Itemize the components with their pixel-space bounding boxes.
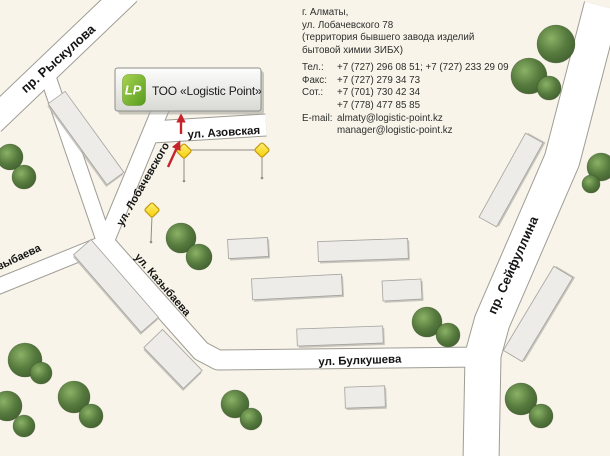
fence-post-dot	[183, 180, 186, 183]
contact-row-value: manager@logistic-point.kz	[337, 125, 453, 138]
contact-row-value: +7 (727) 296 08 51; +7 (727) 233 29 09	[337, 62, 509, 75]
fence-post-dot	[150, 241, 153, 244]
contact-row: Тел.: +7 (727) 296 08 51; +7 (727) 233 2…	[302, 62, 608, 75]
tree-cluster	[58, 381, 103, 428]
contact-row-value: +7 (727) 279 34 73	[337, 75, 420, 88]
contact-territory: бытовой химии ЗИБХ)	[302, 45, 608, 58]
map-canvas: пр. Рыскулова ул. Лобачевского ул. Азовс…	[0, 0, 610, 456]
contact-territory: (территория бывшего завода изделий	[302, 32, 608, 45]
building	[297, 326, 385, 348]
fence-post-dot	[261, 177, 264, 180]
tree-cluster	[0, 144, 36, 189]
contact-block: г. Алматы, ул. Лобачевского 78 (территор…	[302, 7, 608, 138]
gate-marker-diamond	[144, 202, 160, 218]
contact-row-label	[302, 100, 337, 113]
logo-title: ТОО «Logistic Point»	[152, 84, 262, 98]
tree-cluster	[582, 153, 610, 193]
logo-icon: LP	[123, 75, 146, 106]
contact-row-label: Тел.:	[302, 62, 337, 75]
contact-row-label: Факс:	[302, 75, 337, 88]
tree-cluster	[505, 383, 553, 428]
contact-row: Факс: +7 (727) 279 34 73	[302, 75, 608, 88]
contact-row: E-mail: almaty@logistic-point.kz	[302, 113, 608, 126]
contact-row: +7 (778) 477 85 85	[302, 100, 608, 113]
contact-city: г. Алматы,	[302, 7, 608, 20]
contact-row-value: almaty@logistic-point.kz	[337, 113, 443, 126]
tree-cluster	[8, 343, 52, 384]
contact-row-label: Сот.:	[302, 87, 337, 100]
gate-marker-diamond	[254, 142, 270, 158]
contact-row: manager@logistic-point.kz	[302, 125, 608, 138]
tree-cluster	[166, 223, 212, 270]
building	[252, 274, 345, 302]
contact-row-value: +7 (778) 477 85 85	[337, 100, 420, 113]
tree-cluster	[0, 391, 35, 437]
logo-card: LP ТОО «Logistic Point»	[115, 68, 264, 115]
contact-row: Сот.: +7 (701) 730 42 34	[302, 87, 608, 100]
fence-post	[151, 216, 152, 241]
contact-row-label: E-mail:	[302, 113, 337, 126]
contact-row-value: +7 (701) 730 42 34	[337, 87, 420, 100]
building	[382, 279, 424, 303]
tree-cluster	[412, 307, 460, 347]
contact-address: ул. Лобачевского 78	[302, 20, 608, 33]
logo-monogram: LP	[125, 83, 142, 98]
building	[318, 238, 410, 263]
building	[228, 237, 271, 260]
building	[345, 386, 387, 410]
contact-row-label	[302, 125, 337, 138]
tree-cluster	[221, 390, 262, 430]
fence-layer	[150, 150, 264, 243]
